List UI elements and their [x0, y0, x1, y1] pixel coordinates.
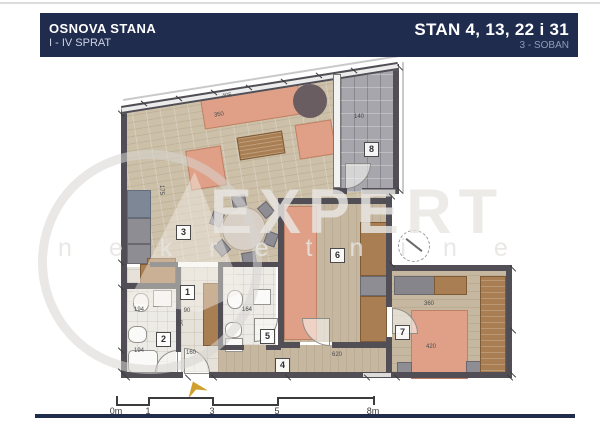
dimension-label: 175	[158, 185, 164, 195]
dimension-label: 90	[184, 308, 191, 314]
wall-terrace-right	[393, 64, 399, 194]
dimension-label: 620	[332, 352, 342, 358]
bed-room7	[411, 310, 468, 379]
room-label-6: 6	[330, 248, 345, 263]
round-rug	[293, 84, 327, 118]
desk-room7	[394, 276, 436, 295]
dimension-label: 160	[186, 350, 196, 356]
wall-room6-bottom-b	[332, 342, 386, 348]
scale-seg	[148, 397, 212, 399]
unit-title: STAN 4, 13, 22 i 31	[414, 20, 569, 40]
title-left: OSNOVA STANA I - IV SPRAT	[49, 21, 156, 49]
title-right: STAN 4, 13, 22 i 31 3 - SOBAN	[414, 20, 569, 51]
wall-bath5-bottom-b	[266, 345, 281, 350]
room-label-3: 3	[176, 225, 191, 240]
wall-room7-top	[386, 265, 512, 271]
top-divider-line	[0, 2, 600, 4]
tick-mark	[185, 374, 191, 380]
room-label-8: 8	[364, 142, 379, 157]
scale-bar: 0m1358m	[116, 394, 374, 416]
dimension-label: 194	[134, 348, 144, 354]
shelf-room7	[434, 276, 467, 295]
floor-plan-page: OSNOVA STANA I - IV SPRAT STAN 4, 13, 22…	[0, 0, 600, 422]
wall-bottom-room7	[392, 372, 512, 378]
room-label-2: 2	[156, 332, 171, 347]
title-bar: OSNOVA STANA I - IV SPRAT STAN 4, 13, 22…	[40, 13, 578, 57]
room-label-5: 5	[260, 329, 275, 344]
dimension-label: 85	[176, 320, 182, 327]
page-subtitle: I - IV SPRAT	[49, 37, 156, 49]
dresser-room6	[360, 296, 387, 342]
room-label-1: 1	[180, 285, 195, 300]
dimension-label: 194	[134, 307, 144, 313]
wardrobe-room7	[480, 276, 506, 378]
dimension-label: 140	[354, 114, 364, 120]
dimension-label: 164	[242, 307, 252, 313]
bottom-navy-bar	[35, 414, 575, 418]
wall-corridor-room7-a	[386, 271, 392, 307]
room-label-4: 4	[275, 358, 290, 373]
scale-seg	[277, 397, 373, 399]
armchair-1	[294, 119, 336, 159]
scale-end-tick	[373, 396, 375, 405]
roof-edge-line-right	[402, 62, 404, 194]
wall-room7-right	[506, 265, 512, 378]
wall-room6-bottom-a	[284, 342, 300, 348]
unit-type: 3 - SOBAN	[414, 40, 569, 51]
dimension-label: 360	[424, 301, 434, 307]
scale-seg	[212, 404, 277, 406]
wall-corridor-room7-b	[386, 337, 392, 372]
room-label-7: 7	[395, 325, 410, 340]
terrace-window-strip	[333, 74, 341, 188]
dimension-label: 420	[426, 344, 436, 350]
page-title: OSNOVA STANA	[49, 21, 156, 36]
desk-room6	[360, 276, 389, 296]
watermark-subtitle: nekretnine	[58, 234, 545, 263]
